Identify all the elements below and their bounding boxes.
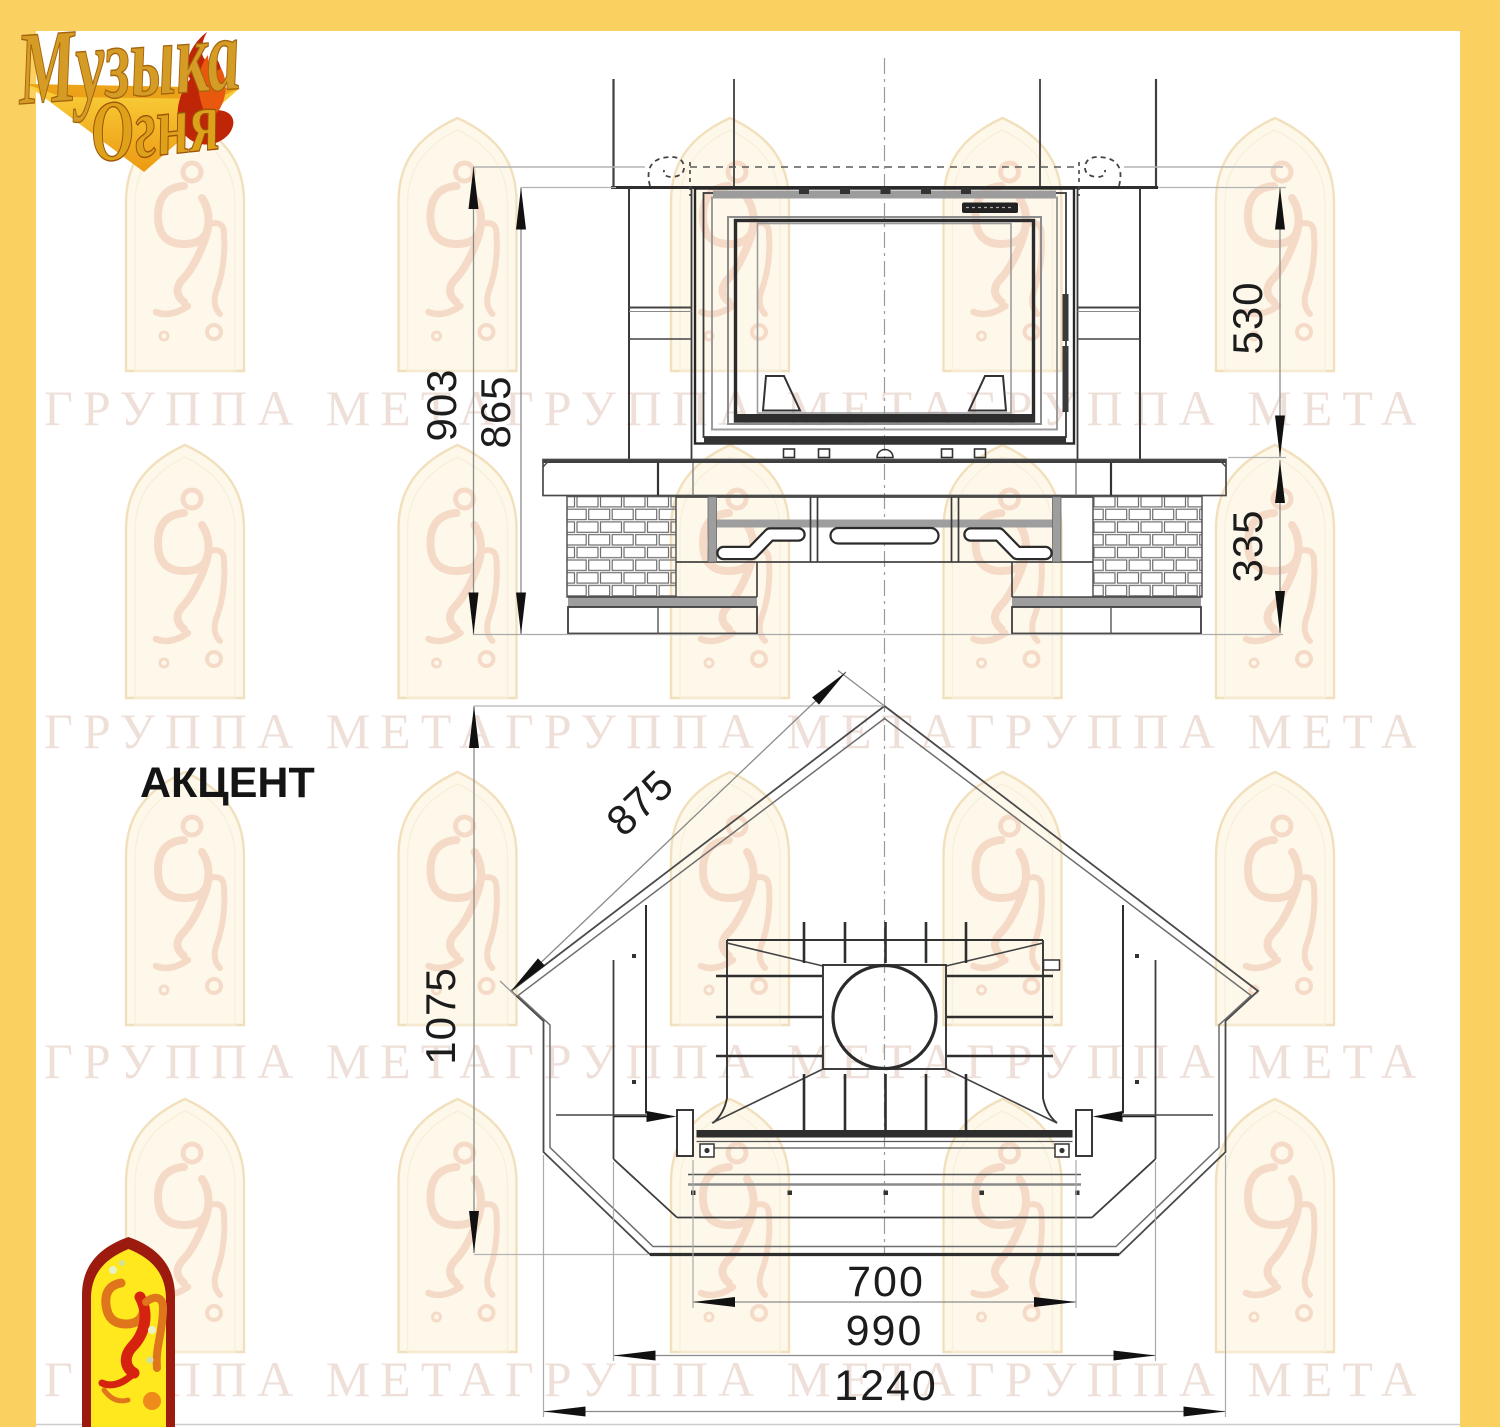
svg-text:Огня: Огня	[86, 73, 224, 182]
svg-text:990: 990	[846, 1307, 924, 1355]
svg-text:865: 865	[472, 375, 519, 448]
svg-text:903: 903	[418, 368, 465, 441]
svg-text:1240: 1240	[834, 1362, 938, 1410]
svg-text:530: 530	[1224, 281, 1271, 354]
svg-text:1075: 1075	[417, 967, 464, 1064]
svg-text:АКЦЕНТ: АКЦЕНТ	[140, 759, 315, 807]
svg-text:335: 335	[1224, 509, 1271, 582]
svg-text:700: 700	[847, 1258, 925, 1306]
svg-text:ГРУППА МЕТАГРУППА МЕТАГРУППА М: ГРУППА МЕТАГРУППА МЕТАГРУППА МЕТА	[44, 1351, 1427, 1407]
svg-text:ГРУППА МЕТАГРУППА МЕТАГРУППА М: ГРУППА МЕТАГРУППА МЕТАГРУППА МЕТА	[44, 703, 1427, 759]
